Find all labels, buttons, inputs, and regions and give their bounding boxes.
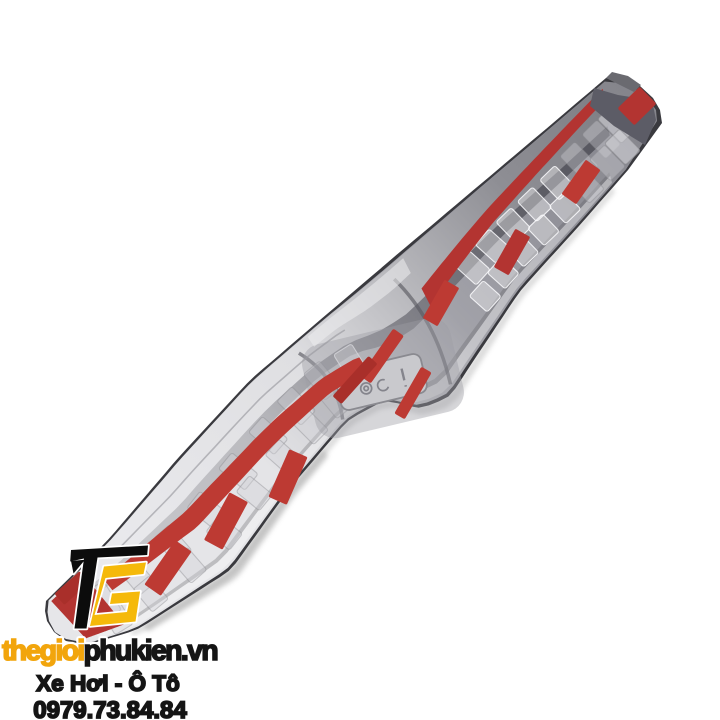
svg-text:thegioiphukien.vn: thegioiphukien.vn bbox=[2, 635, 217, 667]
svg-text:0979.73.84.84: 0979.73.84.84 bbox=[33, 697, 187, 720]
svg-text:Xe Hơi - Ô Tô: Xe Hơi - Ô Tô bbox=[36, 671, 180, 696]
